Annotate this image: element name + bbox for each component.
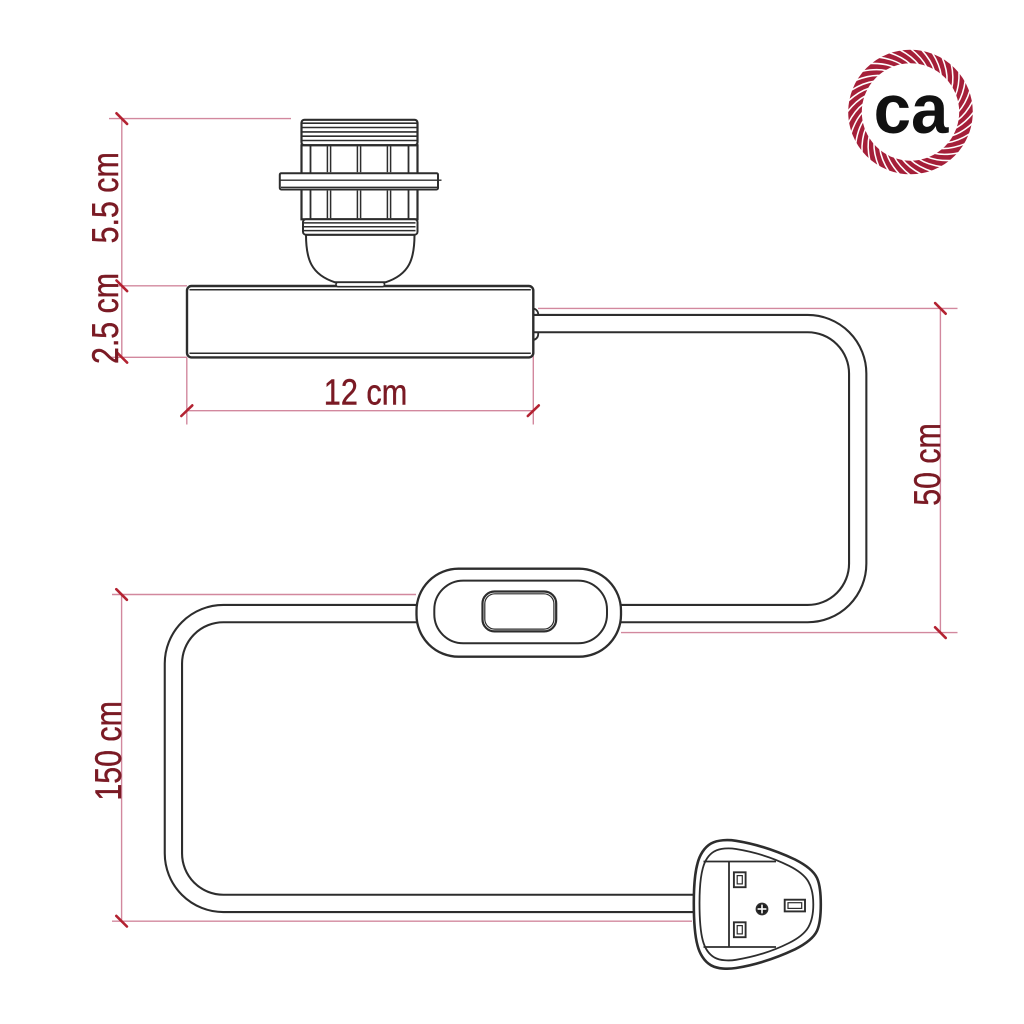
svg-text:12 cm: 12 cm (324, 372, 407, 413)
svg-text:ca: ca (874, 70, 950, 149)
svg-text:2.5 cm: 2.5 cm (85, 273, 127, 364)
svg-text:5.5 cm: 5.5 cm (85, 152, 127, 243)
svg-text:150 cm: 150 cm (88, 701, 130, 800)
svg-text:50 cm: 50 cm (907, 423, 949, 506)
